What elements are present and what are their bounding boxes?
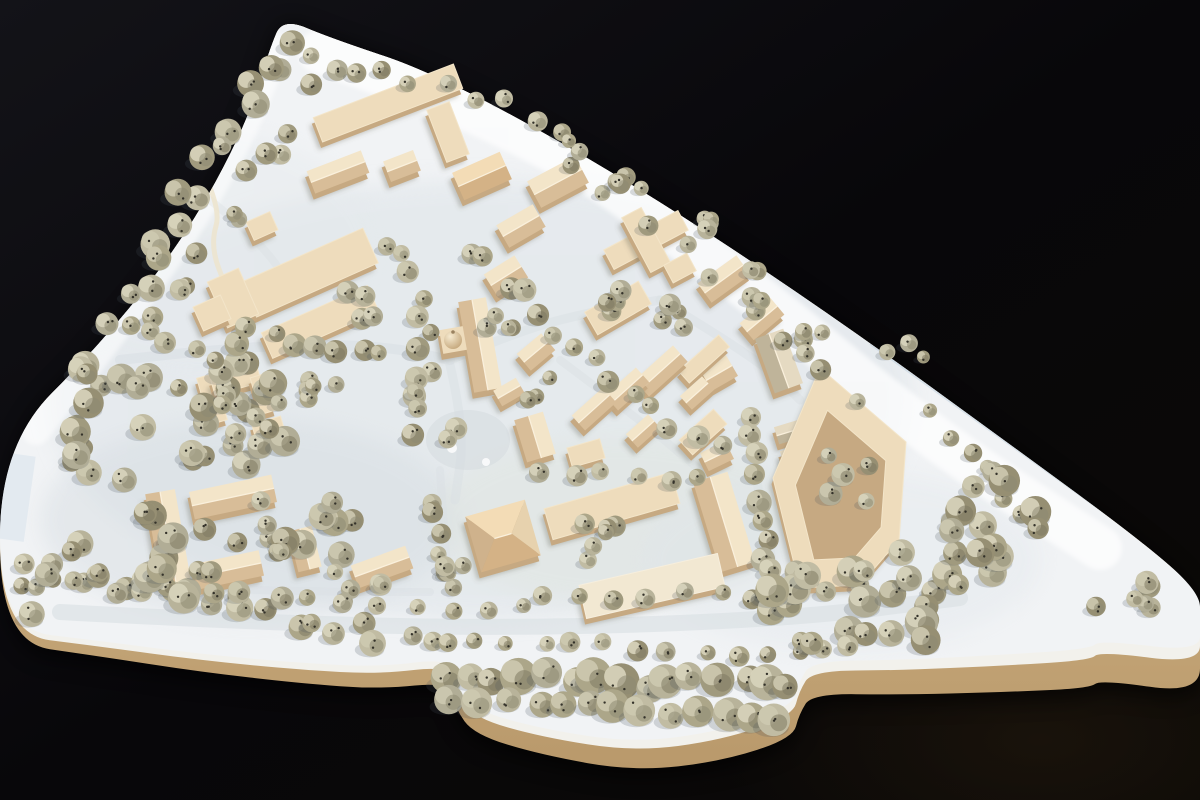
site-model-scene [0, 0, 1200, 800]
church-tower [435, 326, 467, 362]
photo-of-architectural-model [0, 0, 1200, 800]
